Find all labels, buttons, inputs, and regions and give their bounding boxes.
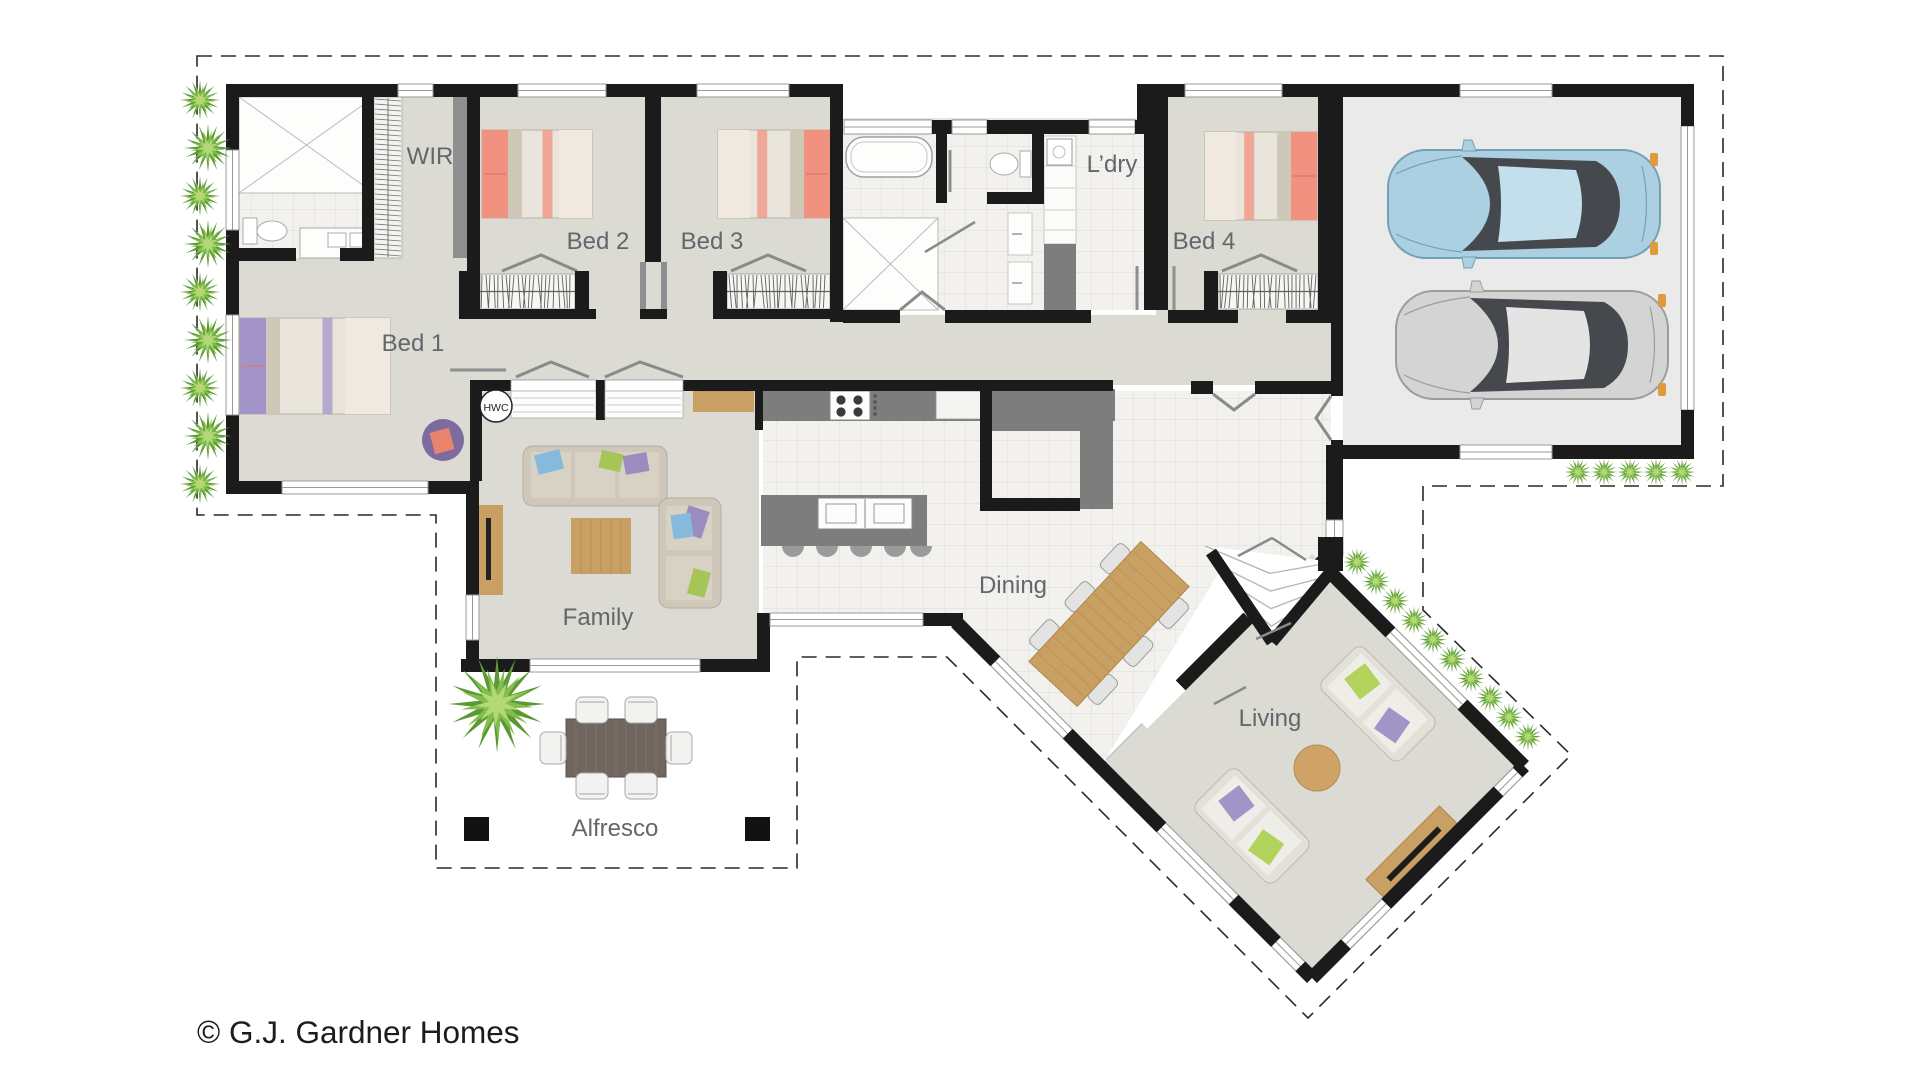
svg-text:Living: Living (1239, 705, 1302, 732)
svg-text:Bed 1: Bed 1 (382, 330, 445, 357)
svg-text:Dining: Dining (979, 572, 1047, 599)
svg-text:L’dry: L’dry (1087, 151, 1138, 178)
svg-text:Alfresco: Alfresco (572, 815, 659, 842)
svg-text:© G.J. Gardner Homes: © G.J. Gardner Homes (197, 1014, 520, 1050)
svg-text:WIR: WIR (407, 143, 454, 170)
svg-text:Family: Family (563, 604, 634, 631)
svg-text:Bed 4: Bed 4 (1173, 228, 1236, 255)
svg-text:HWC: HWC (483, 402, 508, 414)
svg-text:Bed 3: Bed 3 (681, 228, 744, 255)
svg-text:Bed 2: Bed 2 (567, 228, 630, 255)
